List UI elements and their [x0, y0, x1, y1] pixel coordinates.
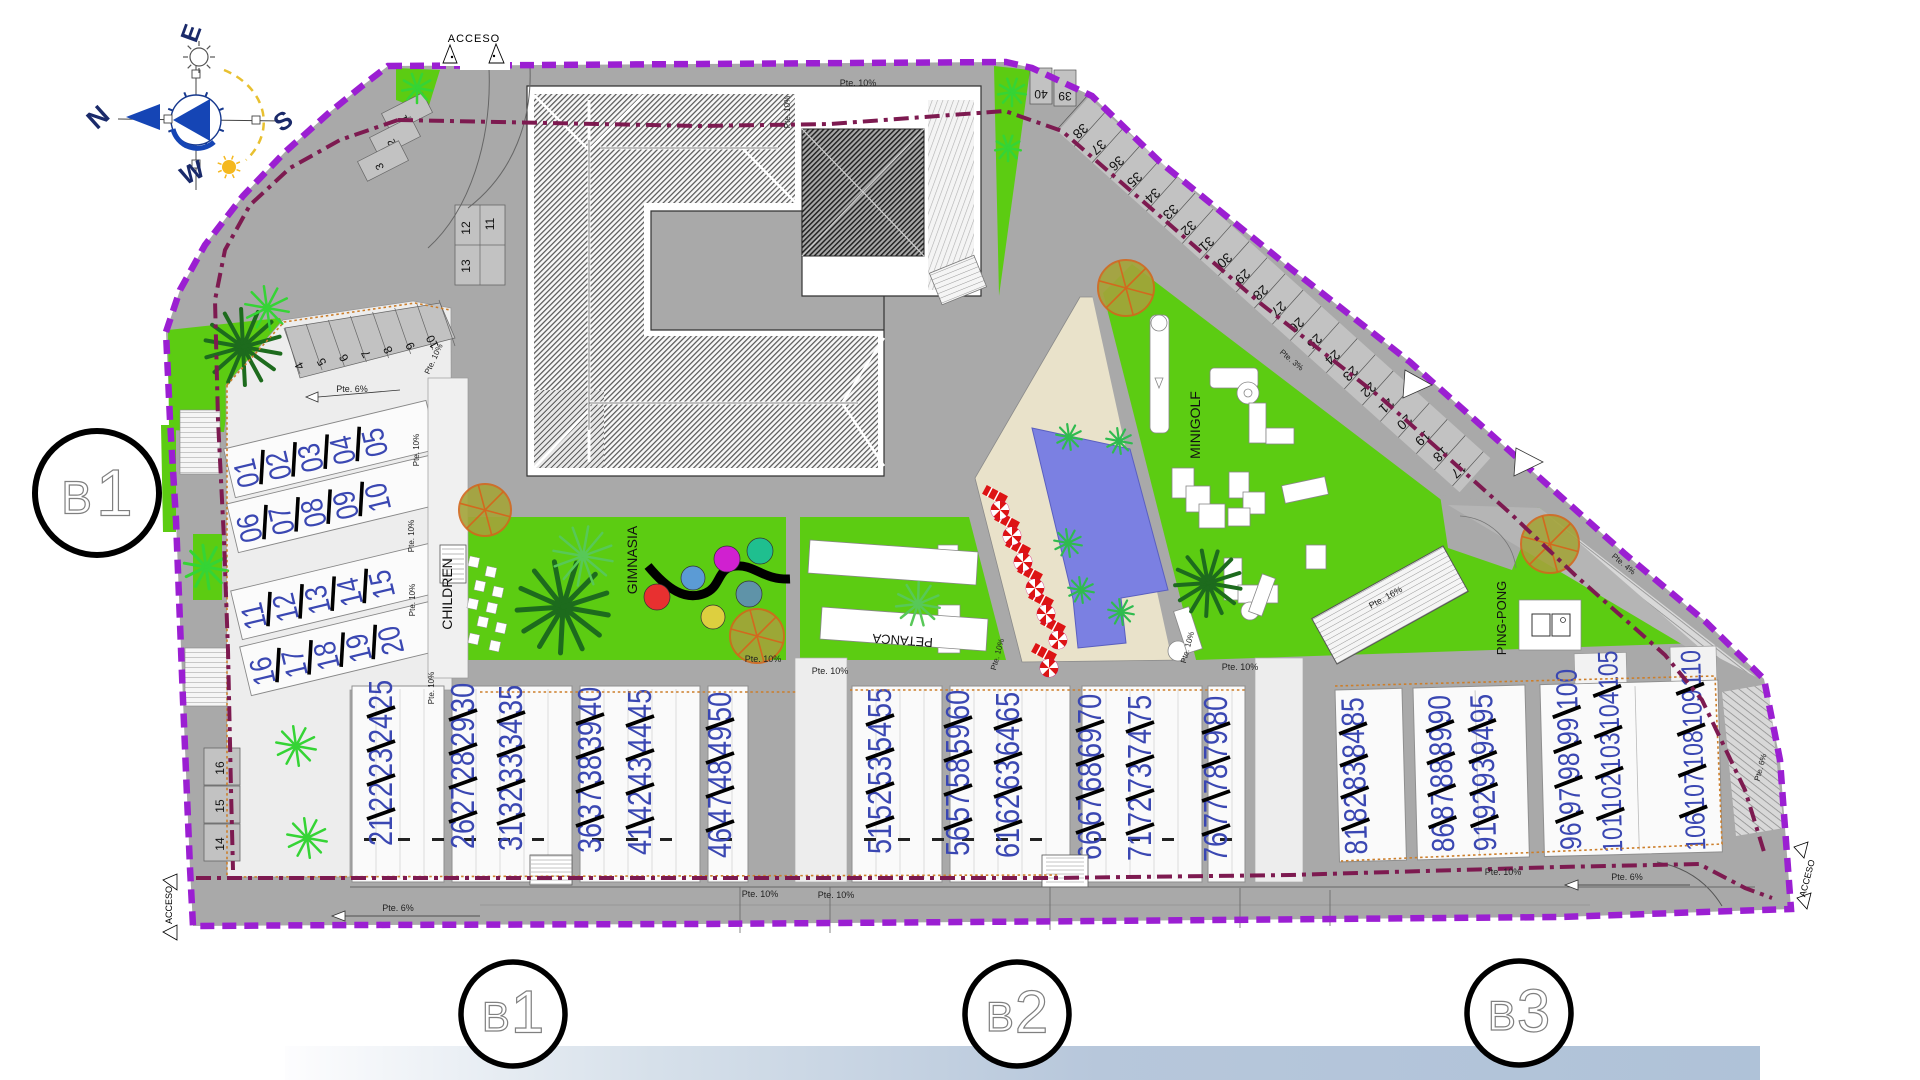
svg-text:B: B — [482, 993, 510, 1040]
svg-text:5152535455: 5152535455 — [863, 688, 899, 854]
svg-text:15: 15 — [213, 799, 227, 813]
svg-text:12: 12 — [459, 221, 473, 235]
svg-text:Pte. 10%: Pte. 10% — [412, 434, 421, 466]
svg-text:106107108109110: 106107108109110 — [1676, 650, 1712, 851]
svg-text:Pte. 6%: Pte. 6% — [382, 903, 414, 913]
svg-text:Pte. 10%: Pte. 10% — [818, 890, 855, 900]
svg-text:101102103104105: 101102103104105 — [1593, 650, 1629, 853]
svg-text:B: B — [1488, 992, 1516, 1039]
svg-text:Pte. 10%: Pte. 10% — [783, 96, 792, 128]
svg-text:Pte. 10%: Pte. 10% — [1485, 867, 1522, 877]
svg-text:Pte. 10%: Pte. 10% — [840, 78, 877, 88]
svg-text:PING-PONG: PING-PONG — [1494, 581, 1509, 655]
svg-text:9192939495: 9192939495 — [1465, 693, 1504, 851]
svg-text:16: 16 — [213, 761, 227, 775]
svg-text:14: 14 — [213, 837, 227, 851]
svg-text:11: 11 — [483, 217, 497, 230]
svg-text:1: 1 — [511, 979, 544, 1046]
svg-text:7172737475: 7172737475 — [1123, 695, 1159, 861]
svg-text:GIMNASIA: GIMNASIA — [624, 525, 640, 594]
svg-text:Pte. 10%: Pte. 10% — [427, 672, 436, 704]
svg-text:3637383940: 3637383940 — [573, 687, 609, 853]
svg-text:CHILDREN: CHILDREN — [439, 558, 455, 630]
svg-text:Pte. 10%: Pte. 10% — [742, 889, 779, 899]
svg-text:2627282930: 2627282930 — [446, 683, 482, 849]
svg-text:Pte. 6%: Pte. 6% — [336, 384, 368, 394]
svg-text:8687888990: 8687888990 — [1423, 695, 1462, 853]
svg-text:96979899100: 96979899100 — [1549, 668, 1588, 850]
svg-text:40: 40 — [1034, 87, 1048, 101]
svg-text:6162636465: 6162636465 — [991, 692, 1027, 858]
svg-text:Pte. 10%: Pte. 10% — [812, 666, 849, 676]
svg-text:3132333435: 3132333435 — [494, 685, 530, 851]
svg-text:39: 39 — [1058, 89, 1072, 103]
svg-text:ACCESO: ACCESO — [164, 886, 174, 924]
svg-text:7677787980: 7677787980 — [1199, 696, 1235, 862]
svg-text:6667686970: 6667686970 — [1073, 694, 1109, 860]
svg-text:Pte. 6%: Pte. 6% — [1611, 872, 1643, 882]
svg-text:Pte. 10%: Pte. 10% — [408, 584, 417, 616]
svg-text:13: 13 — [459, 259, 473, 273]
svg-text:2: 2 — [1015, 979, 1048, 1046]
svg-text:3: 3 — [1517, 978, 1550, 1045]
svg-text:4142434445: 4142434445 — [623, 689, 659, 855]
svg-text:B: B — [986, 993, 1014, 1040]
svg-text:Pte. 10%: Pte. 10% — [407, 520, 416, 552]
svg-text:ACCESO: ACCESO — [448, 33, 500, 45]
svg-text:4647484950: 4647484950 — [703, 692, 739, 858]
svg-text:Pte. 10%: Pte. 10% — [1222, 662, 1259, 672]
svg-text:B: B — [61, 471, 92, 523]
svg-text:1: 1 — [96, 455, 133, 529]
svg-text:8182838485: 8182838485 — [1336, 697, 1375, 855]
svg-text:5657585960: 5657585960 — [941, 690, 977, 856]
svg-text:Pte. 10%: Pte. 10% — [745, 654, 782, 664]
svg-text:2122232425: 2122232425 — [364, 680, 400, 846]
svg-text:MINIGOLF: MINIGOLF — [1187, 391, 1203, 459]
